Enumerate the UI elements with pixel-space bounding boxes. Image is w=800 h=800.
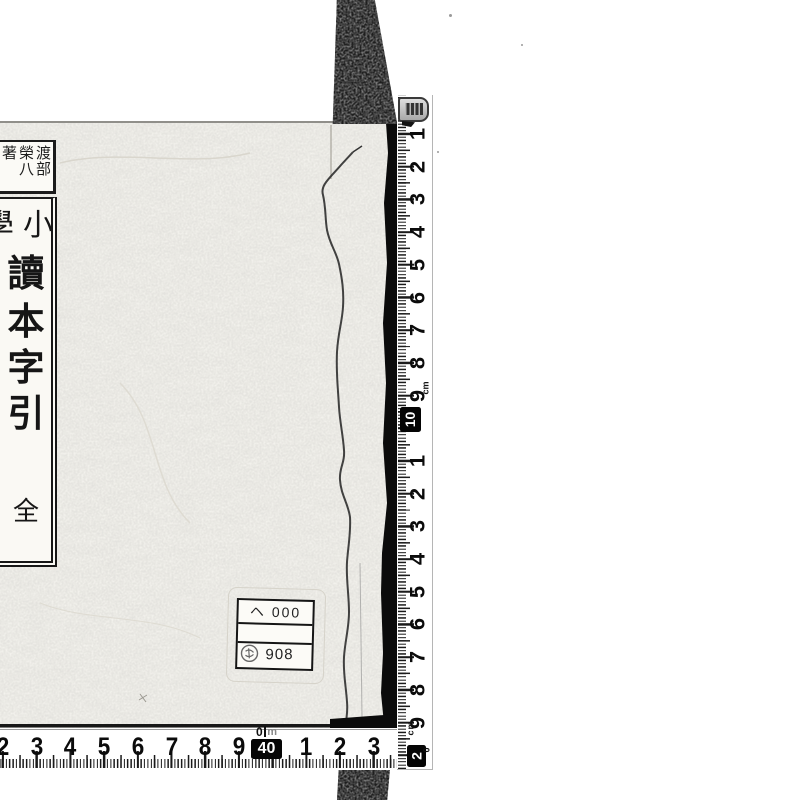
sticker-row3: 908 xyxy=(237,643,312,668)
badge-10-text: 10 xyxy=(398,409,423,430)
dust-speck xyxy=(437,151,439,153)
scanner-strap-bottom xyxy=(337,770,391,800)
v-ruler-number: 8 xyxy=(406,350,431,376)
author-label-col: 渡部 xyxy=(34,145,51,177)
h-ruler-number: 4 xyxy=(60,733,82,762)
meter-unit: m xyxy=(267,726,277,738)
title-char: 引 xyxy=(5,395,47,432)
sticker-row2 xyxy=(238,624,312,645)
title-char: 字 xyxy=(5,349,47,386)
sticker-number: 908 xyxy=(265,646,293,663)
ruler-end-clip xyxy=(398,97,429,122)
v-ruler-number: 3 xyxy=(406,513,431,539)
v-ruler-number: 8 xyxy=(406,677,431,703)
scanner-strap-top xyxy=(330,0,398,124)
h-ruler-number: 6 xyxy=(127,733,149,762)
h-ruler-number: 5 xyxy=(93,733,115,762)
dust-speck xyxy=(521,44,523,46)
v-ruler-number: 7 xyxy=(406,644,431,670)
stamp-mark xyxy=(239,643,260,664)
v-ruler-number: 5 xyxy=(406,252,431,278)
title-prefix-left: 學 xyxy=(0,211,14,242)
h-ruler-number: 2 xyxy=(329,733,351,762)
v-ruler-10cm-badge: 10 xyxy=(400,407,421,432)
v-ruler-number: 3 xyxy=(406,186,431,212)
author-label-col: 著 xyxy=(0,145,17,161)
author-label: 渡部 榮八 著 xyxy=(0,140,56,194)
vertical-ruler: 123456789123456789 cm 10 2 0 cm xyxy=(397,95,433,770)
meter-zero: 0 xyxy=(256,725,263,739)
meter-divider xyxy=(264,726,266,737)
v-ruler-number: 2 xyxy=(406,481,431,507)
call-number-sticker: ヘ 000 908 xyxy=(235,598,315,671)
book-cover: 渡部 榮八 著 學 小 讀 本 字 引 全 ヘ 000 908 xyxy=(0,121,398,728)
scan-page: 渡部 榮八 著 學 小 讀 本 字 引 全 ヘ 000 908 xyxy=(0,0,800,800)
dust-speck xyxy=(449,14,452,17)
v-ruler-number: 2 xyxy=(406,154,431,180)
v-ruler-number: 7 xyxy=(406,317,431,343)
title-volume-char: 全 xyxy=(13,499,39,525)
v-ruler-cm-label-top: cm xyxy=(421,381,431,394)
h-ruler-number: 9 xyxy=(228,733,250,762)
sticker-row1: ヘ 000 xyxy=(238,600,313,626)
badge-20-sup: 0 xyxy=(422,747,432,752)
h-ruler-number: 3 xyxy=(26,733,48,762)
title-char: 本 xyxy=(5,303,47,340)
author-label-col: 榮八 xyxy=(17,145,34,177)
title-char: 讀 xyxy=(5,255,47,292)
h-ruler-number: 1 xyxy=(295,733,317,762)
horizontal-ruler: 234567891234 0 m 40 xyxy=(0,729,420,770)
h-ruler-number: 8 xyxy=(194,733,216,762)
v-ruler-cm-label-bottom: cm xyxy=(406,720,416,735)
v-ruler-number: 5 xyxy=(406,579,431,605)
h-ruler-meter-label: 0 m xyxy=(251,725,282,738)
strap-grain xyxy=(330,0,398,124)
cover-texture xyxy=(0,123,398,728)
v-ruler-number: 1 xyxy=(406,121,431,147)
v-ruler-number: 4 xyxy=(406,546,431,572)
h-ruler-number: 3 xyxy=(363,733,385,762)
strap-grain xyxy=(337,770,391,800)
v-ruler-number: 1 xyxy=(406,448,431,474)
v-ruler-number: 6 xyxy=(406,611,431,637)
h-ruler-40cm-badge: 40 xyxy=(251,739,282,759)
h-ruler-number: 2 xyxy=(0,733,14,762)
v-ruler-number: 4 xyxy=(406,219,431,245)
ruler-clip-emboss xyxy=(405,103,423,115)
h-ruler-number: 7 xyxy=(161,733,183,762)
title-prefix-right: 小 xyxy=(23,211,53,241)
title-label: 學 小 讀 本 字 引 全 xyxy=(0,197,57,567)
v-ruler-number: 6 xyxy=(406,285,431,311)
